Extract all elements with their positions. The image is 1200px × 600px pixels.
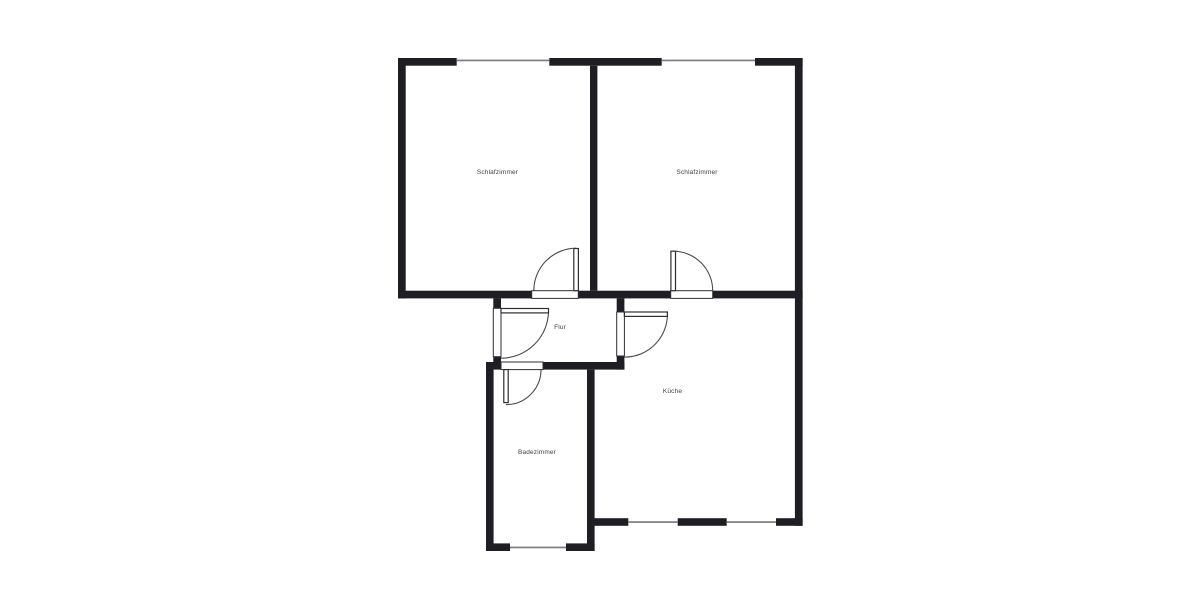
door-opening-bedroom-left [532,291,579,299]
door-arc-kitchen-icon [624,314,667,357]
wall-flur-bottom-seg-2 [543,362,624,370]
wall-kitchen-bottom-seg-1 [587,518,628,526]
door-arc-bathroom-icon [506,370,541,405]
wall-bath-bottom-seg-2 [566,543,595,551]
door-arc-bedroom-left-icon [534,248,577,291]
wall-bath-bottom-seg-1 [486,543,510,551]
wall-left [398,58,406,298]
window-kitchen-2-icon [727,521,776,523]
door-leaf-kitchen-icon [624,312,667,316]
window-bathroom-icon [510,547,566,549]
door-arc-bedroom-right-icon [673,251,713,291]
wall-kitchen-bottom-seg-3 [776,518,803,526]
floor-plan-canvas [0,0,1200,600]
window-bedroom-right-icon [662,60,755,62]
wall-bedroom-divider [590,66,597,291]
door-arcs [501,248,713,404]
room-label-schlafzimmer-right: Schlafzimmer [676,169,717,176]
door-leaf-bedroom-left-icon [574,249,579,291]
wall-bedrooms-bottom-seg-2 [578,291,670,299]
wall-top-seg-1 [398,58,457,66]
wall-top-seg-2 [549,58,661,66]
room-label-badezimmer: Badezimmer [518,449,556,456]
door-opening-flur [493,308,501,356]
wall-flur-left-stub-top [493,298,501,308]
room-label-kueche: Küche [663,388,682,395]
floor-plan-page: Schlafzimmer Schlafzimmer Flur Küche Bad… [0,0,1200,600]
windows [457,60,776,549]
window-bedroom-left-icon [457,60,550,62]
door-opening-bathroom [501,362,543,370]
door-opening-kitchen [617,312,625,356]
room-label-flur: Flur [554,324,566,331]
room-label-schlafzimmer-left: Schlafzimmer [477,169,518,176]
door-opening-bedroom-right [671,291,713,299]
door-leaf-flur-icon [501,309,549,313]
door-leaf-bedroom-right-icon [671,251,676,291]
walls [398,58,803,551]
wall-bedrooms-bottom-seg-1 [398,291,532,299]
door-arc-flur-icon [501,311,549,359]
wall-bath-left [486,362,494,551]
wall-kitchen-bottom-seg-2 [678,518,727,526]
door-leaf-bathroom-icon [504,370,508,403]
wall-flur-right-stub-top [617,298,625,312]
door-openings [493,291,712,370]
wall-bedrooms-bottom-seg-3 [713,291,803,299]
window-kitchen-1-icon [628,521,677,523]
